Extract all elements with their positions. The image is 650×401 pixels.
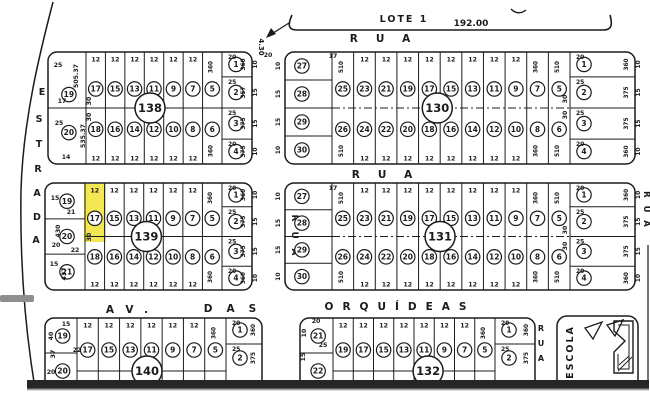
block-number: 139 (134, 230, 158, 244)
lot-number: 16 (110, 125, 120, 134)
lot-number: 5 (213, 346, 218, 355)
bottom-dim: 510 (555, 271, 561, 283)
bottom-dim: 12 (468, 156, 477, 163)
bottom-dim: 12 (188, 156, 197, 163)
survey-dim: 535.37 (80, 124, 87, 148)
bottom-dim: 12 (447, 156, 456, 163)
bottom-dim: 360 (208, 271, 214, 283)
right-depth-dim: 375 (241, 216, 247, 228)
right-side-dim: 10 (635, 60, 642, 68)
lot-number: 28 (297, 90, 307, 99)
lot-number: 13 (129, 214, 139, 223)
rua-top-label: RUA (350, 33, 428, 45)
top-dim: 12 (379, 323, 388, 330)
lot-number: 10 (511, 125, 521, 134)
estrada-letter: A (33, 188, 41, 199)
top-dim: 12 (169, 57, 178, 64)
lot-number: 13 (467, 85, 477, 94)
lot-number: 12 (489, 252, 499, 261)
avenue-label-av: AV. (106, 304, 160, 316)
left-side-dim: 15 (275, 219, 282, 227)
top-dim: 360 (211, 327, 217, 339)
top-dim: 12 (360, 188, 369, 195)
survey-dim: 25 (54, 62, 63, 69)
lot-number: 13 (467, 214, 477, 223)
top-dim: 12 (403, 188, 412, 195)
lot-number: 14 (129, 252, 139, 261)
top-dim: 12 (447, 188, 456, 195)
top-dim: 12 (382, 57, 391, 64)
lot-number: 16 (109, 252, 119, 261)
lot-number: 15 (110, 85, 120, 94)
lot-number: 1 (581, 60, 586, 69)
top-dim: 12 (111, 57, 120, 64)
right-depth-dim: 360 (251, 324, 257, 336)
lot-number: 9 (513, 85, 518, 94)
lot-number: 4 (581, 147, 586, 156)
top-dim: 12 (105, 323, 114, 330)
lot-number: 20 (62, 232, 72, 241)
left-side-dim: 15 (275, 118, 282, 126)
bottom-dim: 12 (403, 156, 412, 163)
block-number: 140 (135, 364, 159, 378)
lot-number: 15 (104, 346, 114, 355)
right-side-dim: 15 (635, 217, 642, 225)
lot-number: 5 (557, 214, 562, 223)
right-width-dim: 20 (228, 268, 236, 275)
top-dim: 360 (534, 61, 540, 73)
survey-dim: 20 (312, 318, 321, 325)
lot-number: 21 (313, 332, 323, 341)
lot-number: 19 (62, 197, 72, 206)
right-depth-dim: 375 (251, 352, 257, 364)
top-dim: 12 (130, 188, 139, 195)
lot-number: 8 (535, 252, 540, 261)
right-side-dim: 15 (252, 119, 259, 127)
right-depth-dim: 375 (524, 352, 530, 364)
lot-number: 9 (513, 214, 518, 223)
right-depth-dim: 375 (624, 86, 630, 98)
right-width-dim: 25 (228, 79, 236, 86)
lot-number: 10 (511, 252, 521, 261)
right-width-dim: 20 (228, 185, 236, 192)
left-side-dim: 10 (275, 62, 282, 70)
right-depth-dim: 375 (241, 146, 247, 158)
lot-number: 5 (210, 85, 215, 94)
right-width-dim: 20 (228, 141, 236, 148)
top-dim: 12 (190, 323, 199, 330)
survey-dim: 10 (301, 328, 308, 337)
bottom-dim: 12 (169, 156, 178, 163)
bottom-dim: 12 (490, 282, 499, 289)
bottom-dim: 12 (447, 282, 456, 289)
lot-number: 14 (467, 125, 477, 134)
lot-number: 18 (424, 252, 434, 261)
survey-dim: 15 (51, 195, 60, 202)
estrada-letter: S (36, 114, 43, 125)
right-side-dim: 15 (252, 247, 259, 255)
right-width-dim: 25 (228, 110, 236, 117)
lot-number: 3 (581, 247, 586, 256)
lot-number: 19 (403, 214, 413, 223)
survey-dim: 30 (562, 241, 569, 250)
top-dim: 12 (447, 57, 456, 64)
lot-number: 18 (424, 125, 434, 134)
lot-number: 15 (446, 85, 456, 94)
lot-number: 22 (381, 125, 391, 134)
lot-number: 4 (233, 147, 238, 156)
lot-number: 26 (338, 125, 348, 134)
left-side-dim: 10 (275, 192, 282, 200)
survey-dim: 30 (562, 110, 569, 119)
escola-label: ESCOLA (565, 325, 576, 379)
top-dim: 510 (555, 192, 561, 204)
survey-dim: 37 (50, 350, 57, 359)
right-side-dim: 10 (252, 274, 259, 282)
right-depth-dim: 360 (624, 189, 630, 201)
top-dim: 12 (83, 323, 92, 330)
top-dim: 12 (490, 57, 499, 64)
survey-dim: 30 (86, 232, 93, 241)
top-dim: 360 (534, 192, 540, 204)
right-width-dim: 25 (576, 110, 584, 117)
bottom-dim: 12 (90, 282, 99, 289)
survey-dim: 15 (300, 353, 307, 362)
survey-dim: 25 (319, 342, 328, 349)
survey-dim: 22 (73, 347, 82, 354)
lot-number: 19 (57, 332, 67, 341)
lot-number: 20 (64, 128, 74, 137)
avenue-label-orquideas: ORQUÍDEAS (325, 300, 476, 313)
top-dim: 12 (425, 188, 434, 195)
lot-number: 25 (338, 85, 348, 94)
survey-dim: 30 (562, 94, 569, 103)
top-dim: 12 (512, 57, 521, 64)
lot-number: 13 (125, 346, 135, 355)
top-dim: 510 (555, 61, 561, 73)
right-width-dim: 20 (576, 141, 584, 148)
lot-number: 13 (399, 346, 409, 355)
lote-label: LOTE 1 (380, 14, 429, 25)
lot-number: 18 (90, 125, 100, 134)
lot-number: 8 (190, 252, 195, 261)
right-width-dim: 25 (576, 209, 584, 216)
top-dim: 12 (130, 57, 139, 64)
lot-number: 29 (297, 245, 307, 254)
top-dim: 12 (359, 323, 368, 330)
survey-dim: 14 (62, 154, 71, 161)
block-number: 130 (425, 101, 449, 115)
right-width-dim: 25 (232, 346, 240, 353)
lot-number: 25 (338, 214, 348, 223)
bottom-dim: 360 (208, 145, 214, 157)
top-dim: 12 (188, 188, 197, 195)
lot-number: 5 (210, 214, 215, 223)
rua-mid-label: RUA (352, 169, 430, 181)
lot-number: 14 (129, 125, 139, 134)
lote-measure: 192.00 (454, 19, 489, 29)
lot-number: 8 (190, 125, 195, 134)
lot-number: 24 (359, 125, 369, 134)
right-side-dim: 10 (635, 274, 642, 282)
right-side-dim: 10 (252, 191, 259, 199)
lot-number: 21 (381, 214, 391, 223)
survey-dim: 15 (62, 321, 71, 328)
lot-number: 27 (297, 62, 307, 71)
bottom-dim: 12 (403, 282, 412, 289)
block-number: 132 (416, 364, 440, 378)
lot-number: 9 (170, 346, 175, 355)
lot-number: 21 (381, 85, 391, 94)
top-dim: 12 (420, 323, 429, 330)
lot-number: 11 (146, 346, 156, 355)
lot-number: 5 (557, 85, 562, 94)
bottom-dim: 12 (512, 282, 521, 289)
rua-vertical-bottom-label: RUA (538, 324, 545, 363)
top-dim: 12 (90, 188, 99, 195)
bottom-dim: 12 (360, 282, 369, 289)
scan-bottom-mask (0, 389, 650, 401)
bottom-dim: 12 (382, 282, 391, 289)
lot-number: 29 (297, 118, 307, 127)
right-depth-dim: 375 (624, 245, 630, 257)
top-dim: 12 (403, 57, 412, 64)
lot-number: 2 (233, 88, 238, 97)
block-number: 138 (138, 101, 162, 115)
lot-number: 11 (489, 214, 499, 223)
top-dim: 12 (188, 57, 197, 64)
top-dim: 12 (360, 57, 369, 64)
lot-number: 30 (297, 272, 307, 281)
right-side-dim: 10 (635, 191, 642, 199)
lot-number: 6 (210, 125, 215, 134)
right-side-dim: 10 (635, 147, 642, 155)
lot-number: 17 (424, 85, 434, 94)
top-dim: 12 (91, 57, 100, 64)
lot-number: 19 (403, 85, 413, 94)
survey-dim: 20 (264, 52, 273, 59)
left-side-dim: 15 (275, 90, 282, 98)
lot-number: 2 (506, 354, 511, 363)
lot-number: 20 (403, 125, 413, 134)
survey-dim: 25 (55, 120, 64, 127)
right-width-dim: 20 (228, 54, 236, 61)
plat-map-page: ESTRADALOTE 1192.004.30RUARUAAV.DASORQUÍ… (0, 0, 650, 401)
scan-fold-bar (27, 380, 649, 389)
lot-number: 12 (148, 252, 158, 261)
lot-number: 2 (237, 354, 242, 363)
right-depth-dim: 360 (624, 58, 630, 70)
bottom-dim: 510 (555, 145, 561, 157)
right-depth-dim: 360 (624, 272, 630, 284)
lot-number: 7 (190, 214, 195, 223)
lot-number: 2 (233, 217, 238, 226)
survey-dim: 30 (86, 96, 93, 105)
rua-bottom-letter: R (538, 324, 544, 333)
survey-dim: 17 (329, 185, 338, 192)
right-width-dim: 25 (576, 239, 584, 246)
right-width-dim: 25 (228, 239, 236, 246)
bottom-dim: 360 (534, 271, 540, 283)
top-dim: 12 (512, 188, 521, 195)
lot-number: 9 (442, 346, 447, 355)
lot-number: 6 (557, 252, 562, 261)
lot-number: 17 (424, 214, 434, 223)
survey-dim: 20 (47, 369, 56, 376)
lot-number: 16 (446, 252, 456, 261)
lot-number: 6 (210, 252, 215, 261)
right-depth-dim: 375 (241, 118, 247, 130)
lot-number: 2 (581, 88, 586, 97)
bottom-dim: 12 (130, 282, 139, 289)
lot-number: 27 (297, 192, 307, 201)
bottom-dim: 12 (130, 156, 139, 163)
top-dim: 12 (490, 188, 499, 195)
lot-number: 9 (170, 214, 175, 223)
lot-number: 10 (168, 252, 178, 261)
survey-dim: 21 (67, 209, 76, 216)
lot-number: 19 (338, 346, 348, 355)
right-depth-dim: 375 (624, 118, 630, 130)
bottom-dim: 12 (188, 282, 197, 289)
right-width-dim: 25 (501, 346, 509, 353)
right-side-dim: 15 (635, 247, 642, 255)
lot-number: 11 (149, 85, 159, 94)
right-depth-dim: 375 (241, 245, 247, 257)
top-dim: 360 (208, 192, 214, 204)
right-depth-dim: 360 (241, 272, 247, 284)
estrada-letter: E (39, 87, 46, 98)
lot-number: 2 (581, 217, 586, 226)
top-dim: 12 (169, 188, 178, 195)
block-number: 131 (428, 230, 452, 244)
lot-number: 14 (467, 252, 477, 261)
bottom-dim: 12 (468, 282, 477, 289)
top-dim: 12 (126, 323, 135, 330)
top-dim: 510 (339, 192, 345, 204)
top-dim: 12 (425, 57, 434, 64)
bottom-dim: 12 (169, 282, 178, 289)
survey-dim: 40 (48, 331, 55, 340)
lot-number: 23 (359, 214, 369, 223)
lot-number: 15 (109, 214, 119, 223)
lot-number: 7 (535, 214, 540, 223)
top-dim: 12 (150, 57, 159, 64)
bottom-dim: 510 (339, 145, 345, 157)
top-dim: 12 (468, 188, 477, 195)
rua-bottom-letter: A (538, 354, 545, 363)
lot-number: 17 (90, 214, 100, 223)
bottom-dim: 12 (91, 156, 100, 163)
lot-number: 11 (419, 346, 429, 355)
right-width-dim: 20 (232, 320, 240, 327)
lot-number: 12 (489, 125, 499, 134)
subdivision-plat-map: ESTRADALOTE 1192.004.30RUARUAAV.DASORQUÍ… (0, 0, 650, 401)
scan-smudge (0, 295, 34, 302)
top-dim: 12 (147, 323, 156, 330)
right-depth-dim: 375 (624, 216, 630, 228)
top-dim: 12 (382, 188, 391, 195)
left-side-dim: 15 (275, 246, 282, 254)
top-dim: 12 (339, 323, 348, 330)
lot-number: 3 (581, 119, 586, 128)
top-dim: 12 (468, 57, 477, 64)
lot-number: 28 (297, 219, 307, 228)
top-dim: 12 (440, 323, 449, 330)
right-width-dim: 20 (576, 185, 584, 192)
bottom-dim: 12 (425, 282, 434, 289)
estrada-letter: T (36, 139, 43, 150)
lot-number: 17 (358, 346, 368, 355)
lot-number: 3 (233, 119, 238, 128)
lot-number: 20 (403, 252, 413, 261)
right-side-dim: 15 (635, 88, 642, 96)
rua-bottom-letter: U (538, 339, 545, 348)
bottom-dim: 12 (425, 156, 434, 163)
top-dim: 12 (460, 323, 469, 330)
right-depth-dim: 360 (624, 146, 630, 158)
lot-number: 17 (82, 346, 92, 355)
right-depth-dim: 360 (524, 324, 530, 336)
lot-number: 10 (168, 125, 178, 134)
right-depth-dim: 360 (241, 189, 247, 201)
right-side-dim: 10 (252, 147, 259, 155)
top-dim: 12 (168, 323, 177, 330)
top-dim: 12 (110, 188, 119, 195)
lot-number: 22 (313, 367, 323, 376)
lot-number: 18 (90, 252, 100, 261)
lot-number: 15 (378, 346, 388, 355)
lot-number: 8 (535, 125, 540, 134)
bottom-dim: 12 (149, 282, 158, 289)
survey-dim: 17 (58, 98, 67, 105)
right-side-dim: 15 (252, 88, 259, 96)
scan-fold-shadow (27, 389, 649, 391)
right-width-dim: 20 (576, 54, 584, 61)
survey-dim: 15 (50, 261, 59, 268)
lot-number: 11 (489, 85, 499, 94)
lot-number: 26 (338, 252, 348, 261)
right-depth-dim: 360 (241, 58, 247, 70)
survey-dim: 437 (61, 268, 68, 281)
bottom-dim: 12 (360, 156, 369, 163)
lot-number: 7 (535, 85, 540, 94)
lot-number: 5 (482, 346, 487, 355)
bottom-dim: 12 (111, 156, 120, 163)
survey-dim: 430 (55, 224, 62, 238)
right-width-dim: 25 (576, 79, 584, 86)
lot-number: 24 (359, 252, 369, 261)
lot-number: 15 (446, 214, 456, 223)
bottom-dim: 12 (512, 156, 521, 163)
avenue-label-das: DAS (204, 303, 270, 315)
right-width-dim: 20 (501, 320, 509, 327)
lot-number: 12 (149, 125, 159, 134)
survey-dim: 20 (52, 242, 61, 249)
top-dim: 360 (208, 61, 214, 73)
bottom-dim: 12 (382, 156, 391, 163)
right-width-dim: 25 (228, 209, 236, 216)
lot-number: 6 (557, 125, 562, 134)
rua-vertical-right-label: RUA (641, 191, 650, 235)
lot-number: 20 (57, 367, 67, 376)
top-dim: 510 (339, 61, 345, 73)
lot-number: 17 (90, 85, 100, 94)
survey-dim: 30 (86, 112, 93, 121)
left-side-dim: 10 (275, 272, 282, 280)
right-side-dim: 15 (252, 217, 259, 225)
top-dim: 12 (149, 188, 158, 195)
